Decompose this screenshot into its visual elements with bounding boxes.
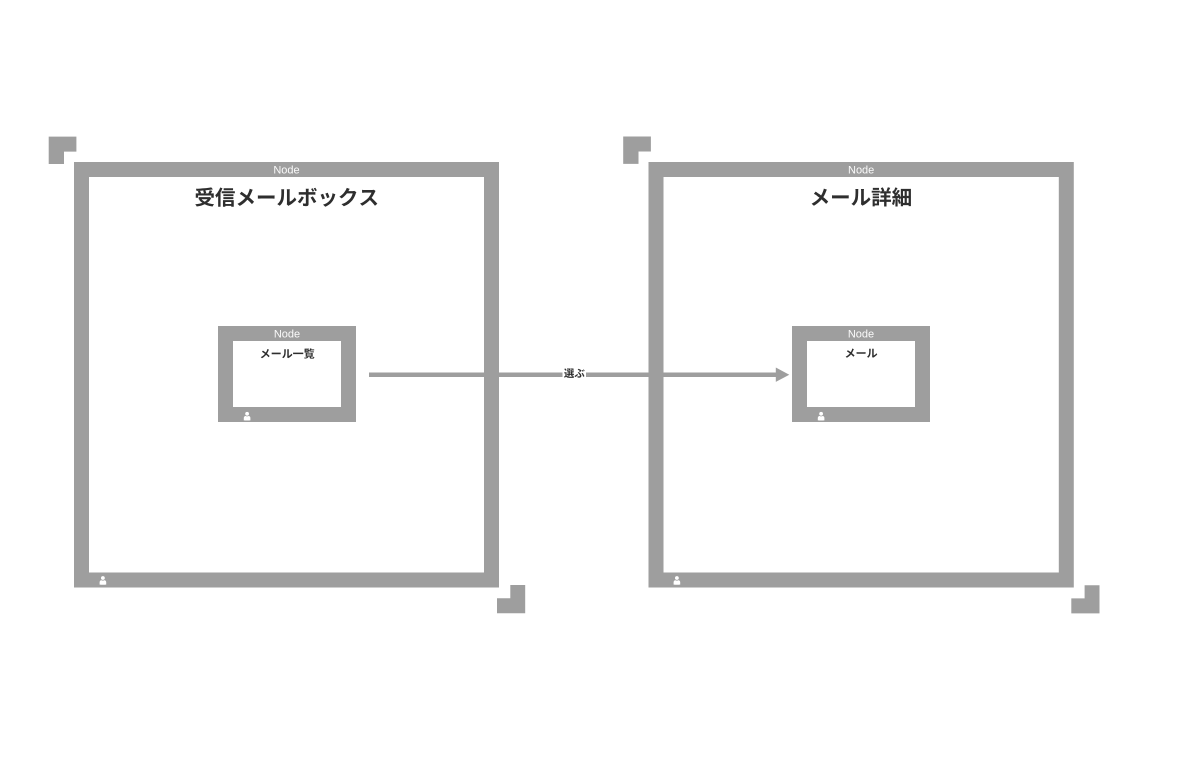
- svg-text:Node: Node: [848, 329, 874, 341]
- svg-text:Node: Node: [848, 165, 874, 177]
- svg-text:Node: Node: [274, 329, 300, 341]
- svg-text:Node: Node: [273, 165, 299, 177]
